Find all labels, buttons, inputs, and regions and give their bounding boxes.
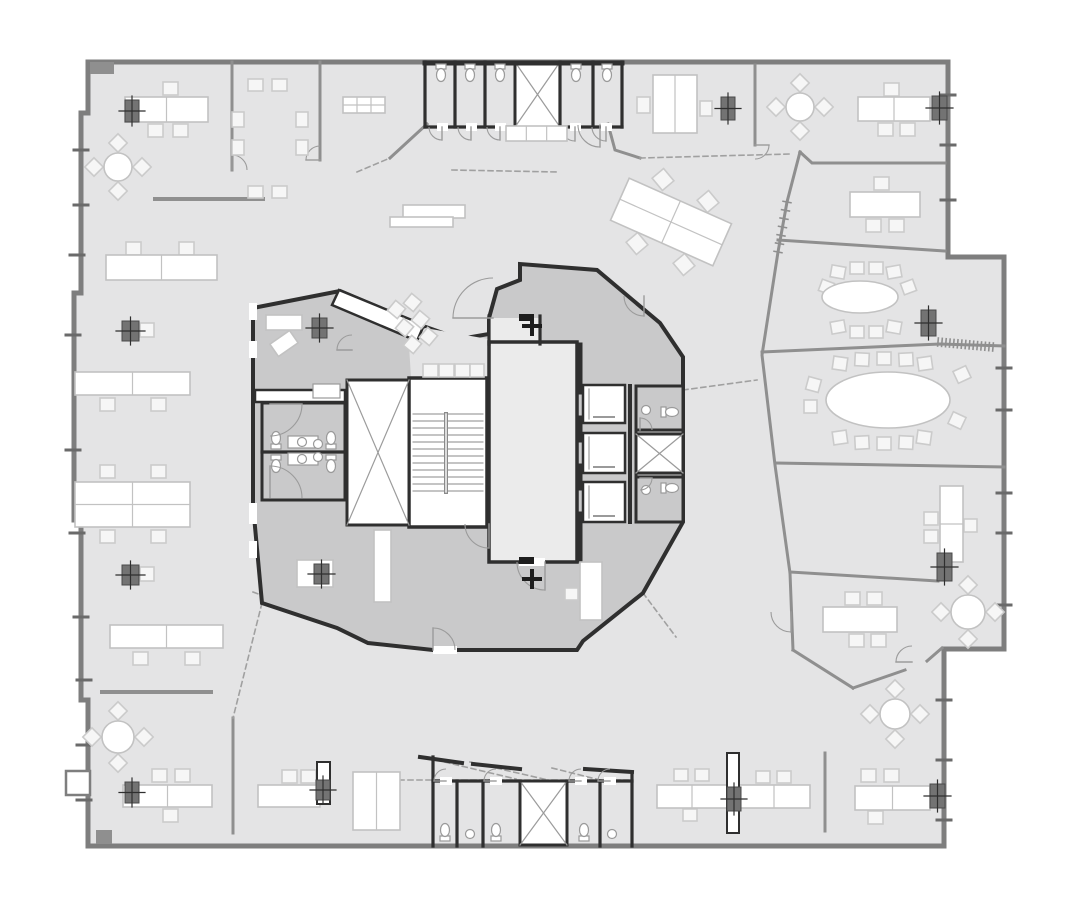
facade-ledge <box>66 771 90 795</box>
round-table <box>102 721 134 753</box>
desk <box>75 482 190 527</box>
chair <box>126 242 141 255</box>
chair <box>151 465 166 478</box>
sink-icon <box>314 453 323 462</box>
chair <box>845 592 860 605</box>
glazing-hatch-tick <box>938 338 939 346</box>
chair <box>871 634 886 647</box>
chair <box>282 770 297 783</box>
door-gap <box>249 503 257 524</box>
desk <box>75 372 190 395</box>
chair <box>179 242 194 255</box>
chair <box>151 398 166 411</box>
toilet-icon <box>495 64 505 82</box>
chair <box>140 323 154 337</box>
desk <box>940 486 963 562</box>
chair <box>886 265 902 279</box>
conference-table <box>822 281 898 313</box>
floor-plan-page <box>0 0 1080 900</box>
door-jamb <box>519 557 534 564</box>
chair <box>917 356 933 371</box>
chair <box>455 364 470 377</box>
desk <box>506 126 567 141</box>
desk <box>738 785 810 808</box>
chair <box>874 177 889 190</box>
chair <box>899 353 914 367</box>
chair <box>152 769 167 782</box>
glazing-hatch-tick <box>973 341 974 349</box>
floor-plan <box>0 0 1080 900</box>
vanity-counter <box>313 384 340 398</box>
desk <box>403 205 465 218</box>
desk <box>258 785 320 807</box>
desk <box>657 785 727 808</box>
chair <box>565 588 578 600</box>
glazing-hatch-tick <box>989 343 990 351</box>
chair <box>964 519 977 532</box>
toilet-icon <box>465 64 475 82</box>
chair <box>683 809 697 821</box>
chair <box>637 97 650 113</box>
chair <box>100 465 115 478</box>
glazing-hatch-tick <box>949 339 950 347</box>
chair <box>869 262 883 274</box>
chair <box>163 82 178 95</box>
sink-icon <box>298 455 307 464</box>
chair <box>867 592 882 605</box>
chair <box>804 400 817 413</box>
desk <box>343 97 385 113</box>
chair <box>900 123 915 136</box>
chair <box>884 83 899 96</box>
desk <box>653 75 697 133</box>
glazing-hatch-tick <box>969 341 970 349</box>
toilet-icon <box>602 64 612 82</box>
chair <box>877 352 891 365</box>
chair <box>272 186 287 198</box>
chair <box>884 769 899 782</box>
toilet-icon <box>326 455 336 473</box>
chair <box>924 530 938 543</box>
chair <box>700 101 712 116</box>
chair <box>148 124 163 137</box>
wall-corner-block <box>96 830 112 844</box>
sink-icon <box>642 406 651 415</box>
chair <box>100 398 115 411</box>
chair <box>830 320 846 334</box>
toilet-icon <box>491 824 501 842</box>
chair <box>868 811 883 824</box>
chair <box>163 809 178 822</box>
toilet-icon <box>571 64 581 82</box>
wall-corner-block <box>90 62 114 74</box>
door-gap <box>433 646 457 654</box>
round-table <box>104 153 132 181</box>
chair <box>248 186 263 198</box>
chair <box>756 771 770 783</box>
door-gap <box>249 541 257 558</box>
toilet-icon <box>271 455 281 473</box>
toilet-icon <box>661 483 679 493</box>
chair <box>296 112 308 127</box>
chair <box>175 769 190 782</box>
chair <box>173 124 188 137</box>
chair <box>439 364 454 377</box>
chair <box>832 430 848 445</box>
chair <box>423 364 438 377</box>
chair <box>806 377 822 393</box>
glazing-hatch-tick <box>961 340 962 348</box>
elevator-lobby <box>489 342 577 562</box>
chair <box>866 219 881 232</box>
chair <box>861 769 876 782</box>
chair <box>877 437 891 450</box>
round-table <box>880 699 910 729</box>
glazing-hatch-tick <box>965 341 966 349</box>
sink-icon <box>466 830 475 839</box>
desk <box>390 217 453 227</box>
chair <box>100 530 115 543</box>
chair <box>296 140 308 155</box>
round-table <box>951 595 985 629</box>
chair <box>151 530 166 543</box>
glazing-hatch-tick <box>985 342 986 350</box>
chair <box>916 430 932 445</box>
chair <box>830 265 846 279</box>
chair <box>889 219 904 232</box>
chair <box>301 770 316 783</box>
chair <box>695 769 709 781</box>
toilet-icon <box>661 407 679 417</box>
glazing-hatch-tick <box>942 338 943 346</box>
chair <box>272 79 287 91</box>
chair <box>140 567 154 581</box>
desk <box>106 255 217 280</box>
door-gap <box>249 341 257 358</box>
low-counter <box>100 690 213 694</box>
chair <box>470 364 484 377</box>
desk <box>858 97 930 121</box>
chair <box>777 771 791 783</box>
desk <box>855 786 930 810</box>
desk <box>353 772 400 830</box>
chair <box>886 320 902 334</box>
desk <box>374 530 391 602</box>
chair <box>869 326 883 338</box>
chair <box>849 634 864 647</box>
desk <box>823 607 897 632</box>
desk <box>850 192 920 217</box>
chair <box>850 262 864 274</box>
chair <box>855 353 870 367</box>
desk <box>110 625 223 648</box>
glazing-hatch-tick <box>953 339 954 347</box>
chair <box>855 436 870 450</box>
chair <box>248 79 263 91</box>
chair <box>832 356 848 371</box>
glazing-hatch-tick <box>957 340 958 348</box>
chair <box>899 436 914 450</box>
toilet-icon <box>326 432 336 450</box>
chair <box>133 652 148 665</box>
glazing-hatch-tick <box>981 342 982 350</box>
chair <box>232 140 244 155</box>
desk <box>266 315 302 330</box>
glazing-hatch-tick <box>945 339 946 347</box>
chair <box>850 326 864 338</box>
toilet-icon <box>436 64 446 82</box>
glazing-hatch-tick <box>993 343 994 351</box>
toilet-icon <box>440 824 450 842</box>
glazing-hatch-tick <box>977 342 978 350</box>
round-table <box>786 93 814 121</box>
chair <box>185 652 200 665</box>
desk <box>580 562 602 620</box>
chair <box>674 769 688 781</box>
sink-icon <box>298 438 307 447</box>
chair <box>232 112 244 127</box>
chair <box>924 512 938 525</box>
sink-icon <box>608 830 617 839</box>
door-gap <box>249 303 257 320</box>
conference-table <box>826 372 950 428</box>
sink-icon <box>314 440 323 449</box>
chair <box>878 123 893 136</box>
toilet-icon <box>579 824 589 842</box>
